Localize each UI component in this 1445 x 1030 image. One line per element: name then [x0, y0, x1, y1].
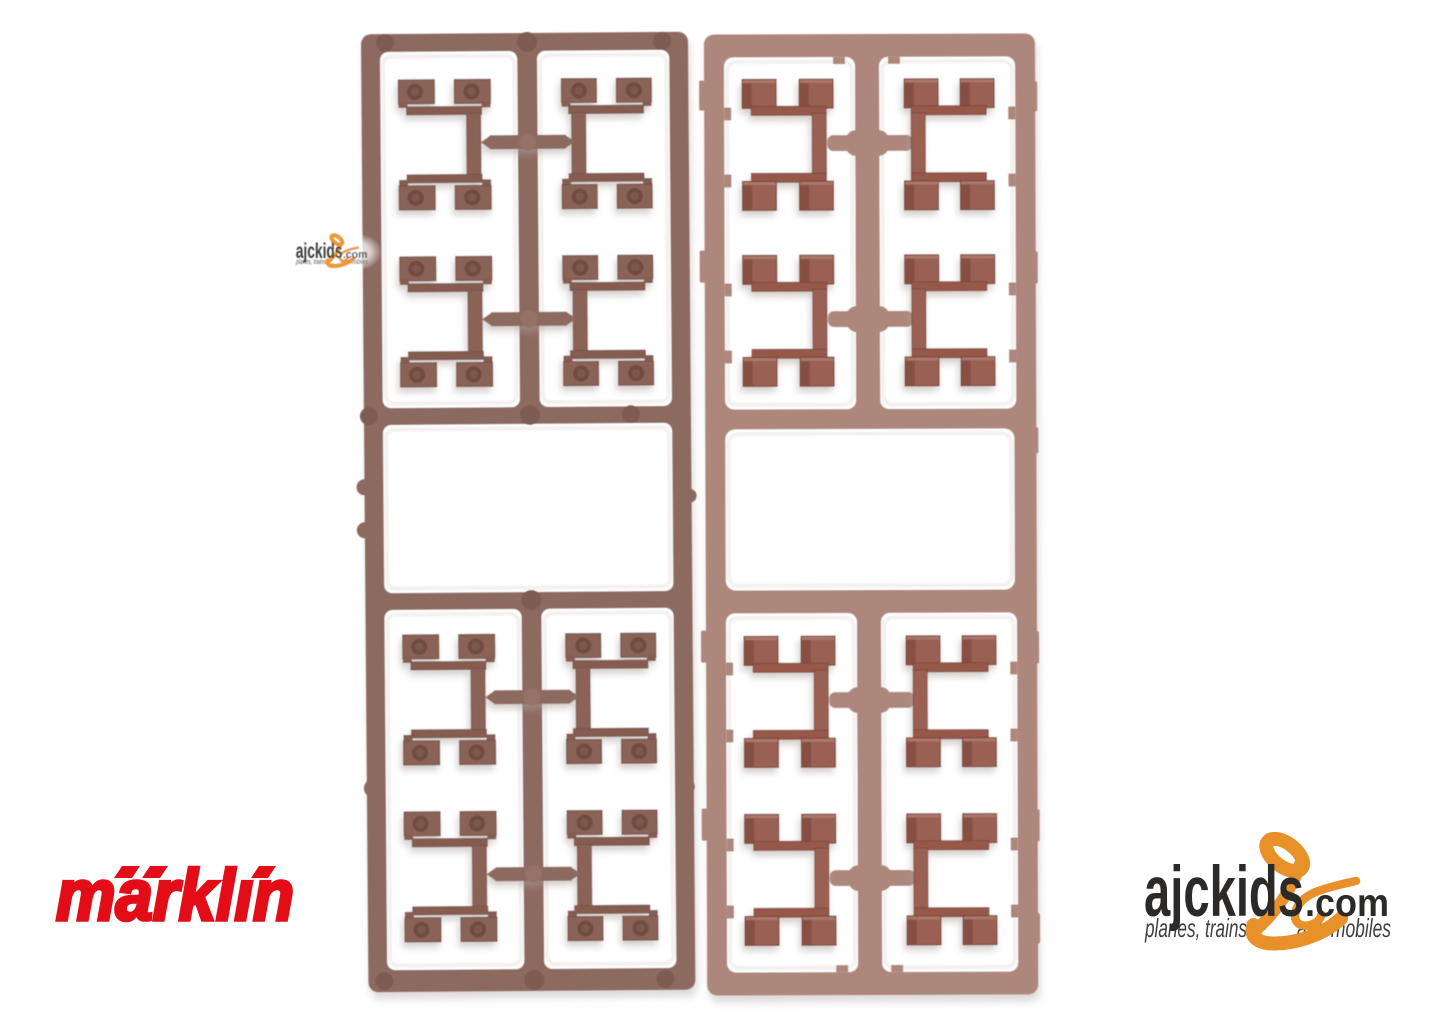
svg-text:ajckids: ajckids — [1144, 853, 1304, 932]
svg-text:.com: .com — [1305, 882, 1389, 925]
